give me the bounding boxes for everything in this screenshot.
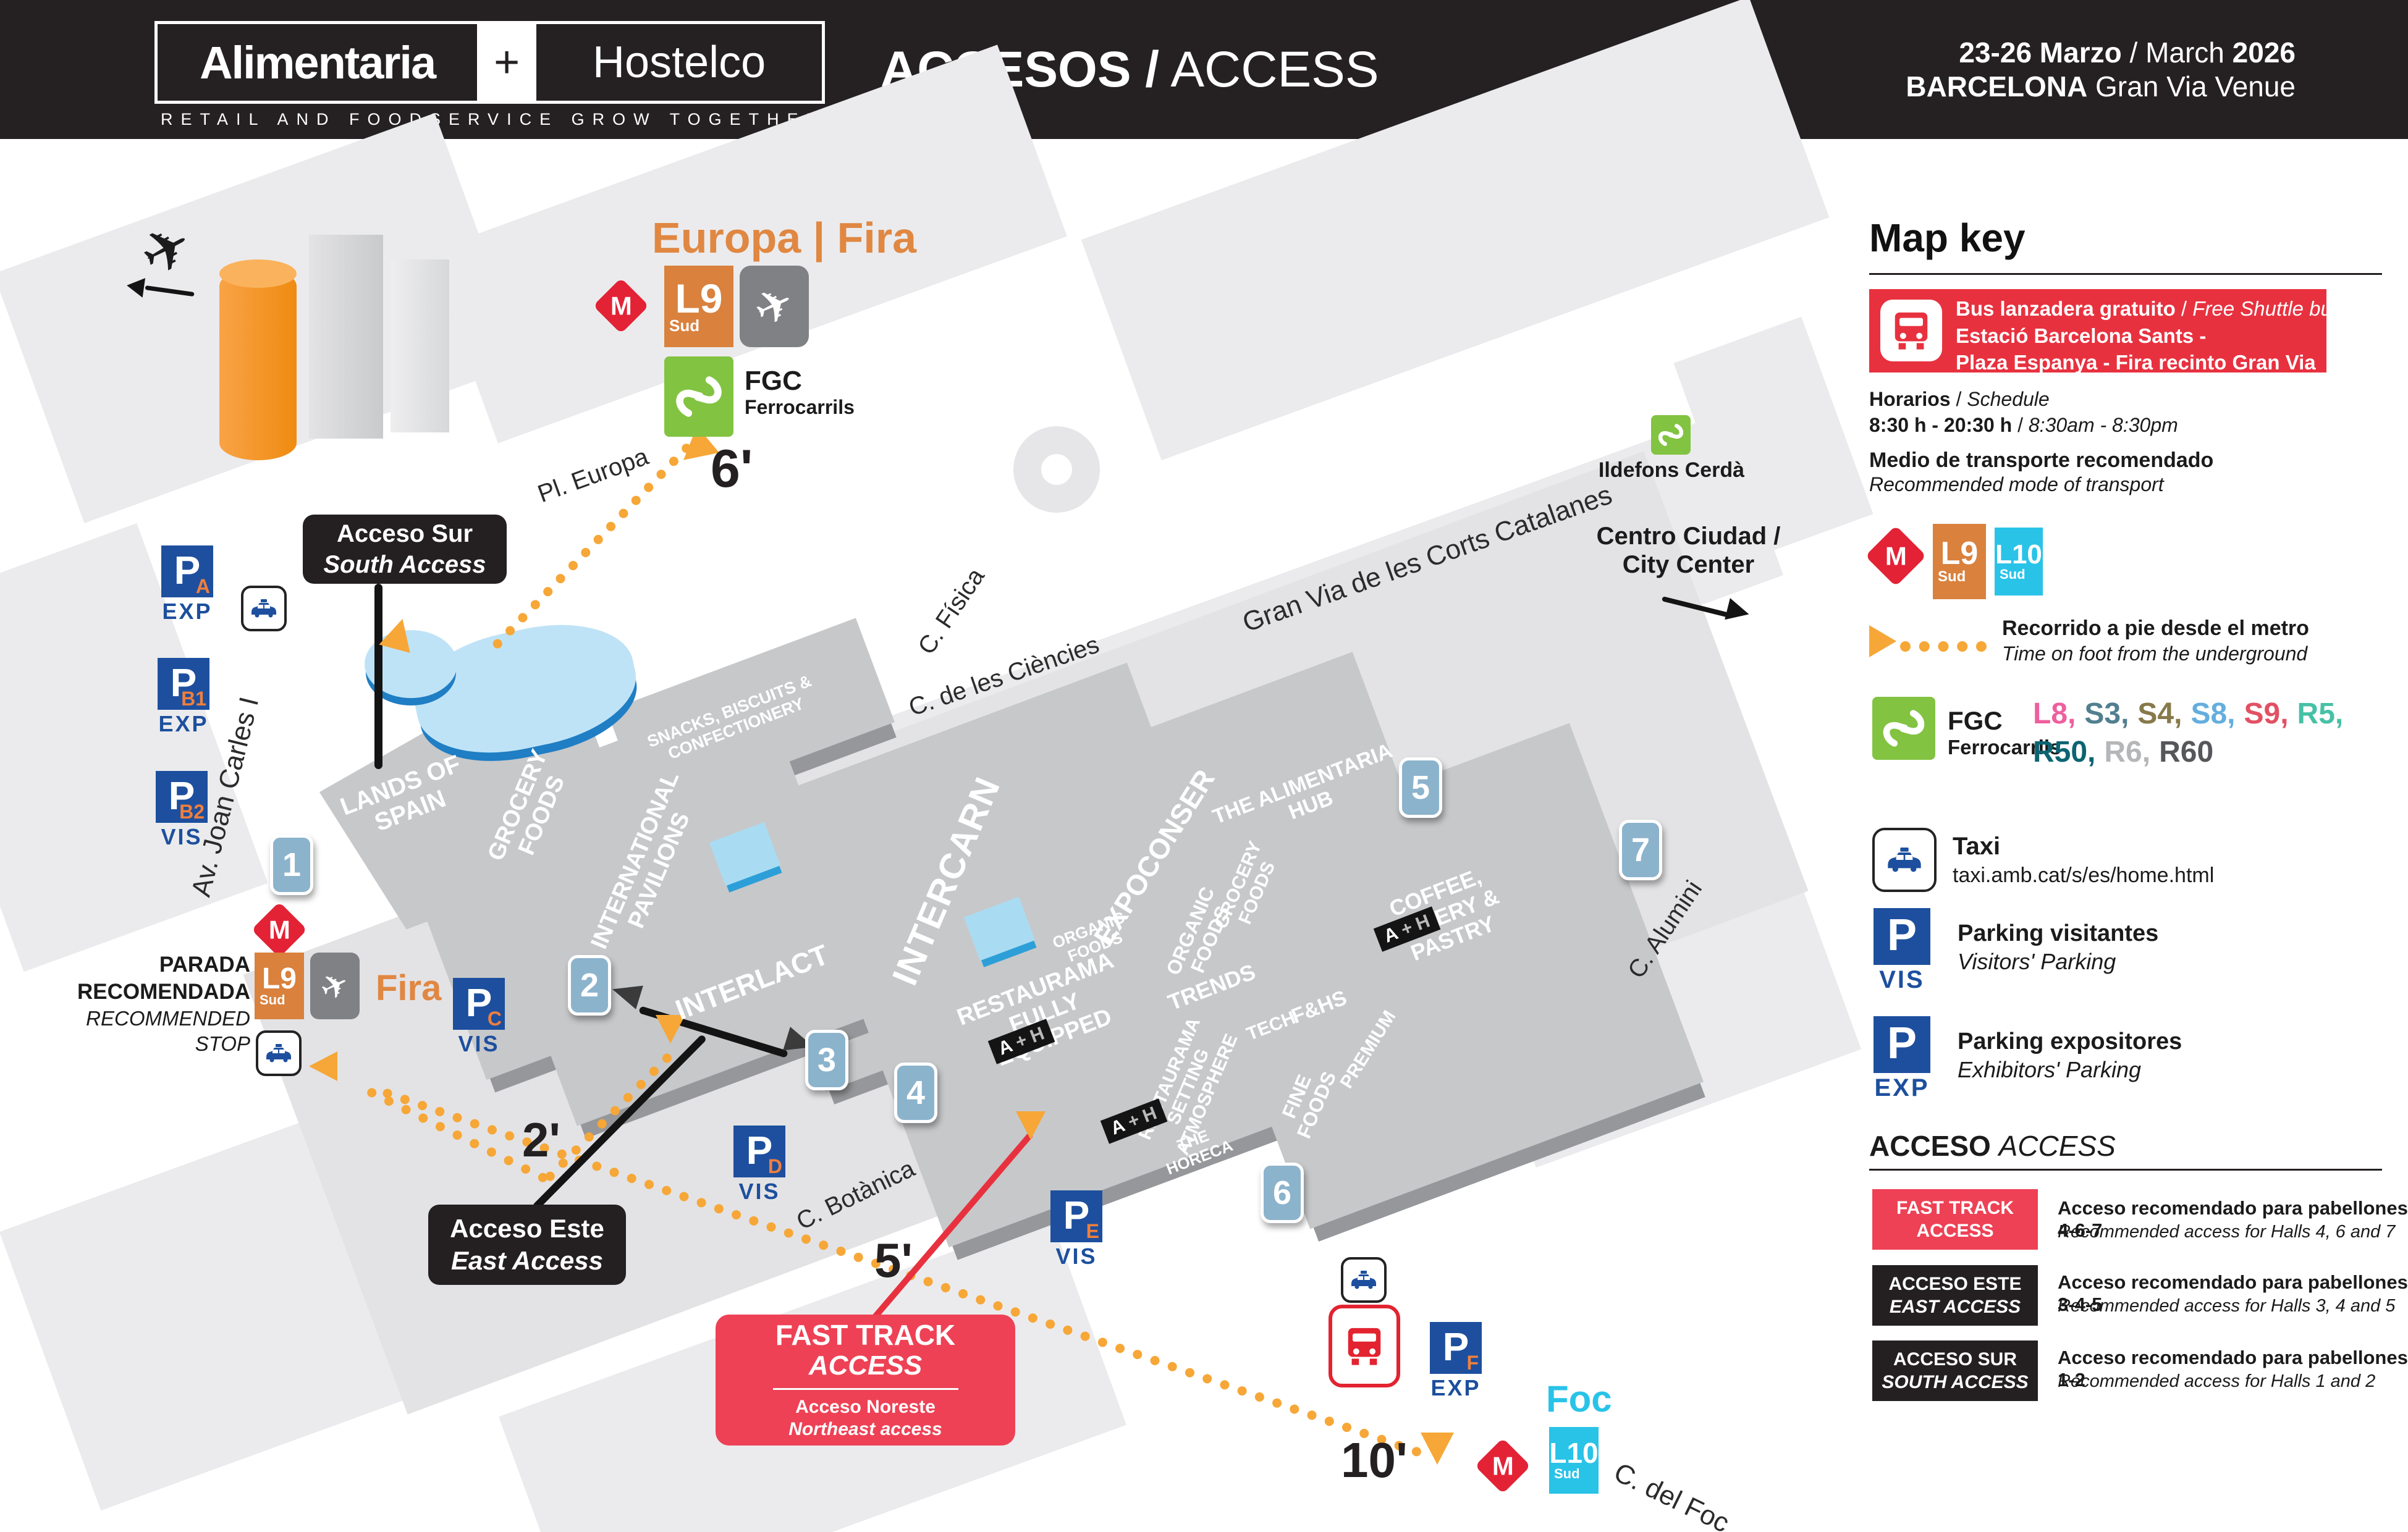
taxi-icon [256,1030,302,1076]
hall-number-3: 3 [805,1030,848,1090]
parking-d: PD VIS [732,1126,787,1205]
parking-vis-es: Parking visitantes [1958,920,2158,947]
south-access-pointer-line [374,584,382,769]
city-center-line2: City Center [1582,550,1795,579]
walk-legend-en: Time on foot from the underground [2002,642,2307,665]
acceso-divider [1869,1169,2382,1171]
fgc-icon-europa [664,356,733,437]
taxi-icon [241,586,287,631]
recommended-stop-label: PARADA RECOMENDADA RECOMMENDED STOP [46,951,250,1056]
airport-line-icon-fira: ✈ [310,953,360,1019]
south-access-legend-box: ACCESO SUR SOUTH ACCESS [1872,1340,2038,1401]
l9-badge-europa: L9 Sud [664,266,733,347]
venue-city: BARCELONA [1906,70,2087,103]
shuttle-legend: Bus lanzadera gratuito / Free Shuttle bu… [1869,289,2326,372]
east-access-callout: Acceso Este East Access [428,1205,626,1285]
fast-track-callout: FAST TRACK ACCESS Acceso Noreste Northea… [716,1315,1015,1446]
walk-time-10: 10' [1341,1432,1408,1489]
metro-icon-foc: M [1475,1438,1531,1494]
logo-tagline: RETAIL AND FOODSERVICE GROW TOGETHER [161,110,826,129]
logo-alimentaria: Alimentaria [158,24,477,101]
south-access-desc-en: Recommended access for Halls 1 and 2 [2058,1371,2375,1392]
walk-time-5: 5' [874,1232,913,1289]
walk-triangle-fira [309,1051,337,1081]
hotel-tower-top [219,259,297,288]
europa-fira-station-label: Europa | Fira [652,213,916,263]
taxi-legend-icon [1872,828,1937,892]
schedule-label: Horarios / Schedule [1869,388,2050,411]
ah-a: A [1381,923,1401,948]
parking-b2: PB2 VIS [154,771,209,850]
l9-badge-fira: L9 Sud [255,953,304,1019]
venue-name: Gran Via Venue [2095,70,2296,103]
street-label-fisica: C. Física [913,563,991,660]
event-venue-line: BARCELONA Gran Via Venue [1906,70,2296,104]
east-access-es: Acceso Este [428,1213,626,1245]
logo-plus-icon: + [477,24,536,101]
east-access-en: East Access [428,1245,626,1277]
south-access-en: South Access [303,549,507,580]
walk-legend-es: Recorrido a pie desde el metro [2002,617,2309,641]
fira-station-label: Fira [376,967,441,1009]
fast-track-legend-box: FAST TRACK ACCESS [1872,1189,2038,1250]
fast-track-desc-en: Recommended access for Halls 4, 6 and 7 [2058,1222,2395,1242]
logo: Alimentaria + Hostelco [154,21,825,104]
tower-building [391,259,449,432]
key-divider [1869,273,2382,275]
airport-arrow-head [125,276,145,298]
schedule-times: 8:30 h - 20:30 h / 8:30am - 8:30pm [1869,414,2178,437]
fast-track-divider [773,1388,958,1390]
parking-c: PC VIS [451,978,507,1057]
page-title-en: ACCESS [1170,41,1379,98]
l10-legend-badge: L10 Sud [1995,528,2043,596]
walk-triangle-foc [1421,1433,1454,1465]
city-center-arrow-head [1725,598,1752,625]
fgc-station-icon [1651,415,1691,455]
fgc-text-europa: FGC Ferrocarrils [745,368,855,417]
parking-e: PE VIS [1049,1190,1104,1269]
shuttle-legend-text: Bus lanzadera gratuito / Free Shuttle bu… [1956,295,2342,376]
ah-plus: + [1398,917,1416,941]
header: Alimentaria + Hostelco RETAIL AND FOODSE… [0,0,2408,139]
parking-b1: PB1 EXP [156,658,211,737]
ildefons-cerda-label: Ildefons Cerdà [1594,458,1749,482]
ah-h: H [1413,911,1433,935]
event-dates: 23-26 Marzo / March 2026 BARCELONA Gran … [1906,36,2296,104]
hall-number-7: 7 [1619,820,1662,880]
city-center-line1: Centro Ciudad / [1582,522,1795,550]
parking-exp-es: Parking expositores [1958,1029,2182,1055]
parking-exp-en: Exhibitors' Parking [1958,1057,2141,1083]
parking-exp-legend: P EXP [1872,1016,1932,1102]
walk-triangle-fast-track [1016,1111,1046,1140]
hall-number-4: 4 [894,1063,937,1123]
transport-mode-en: Recommended mode of transport [1869,473,2164,496]
parking-f: PF EXP [1428,1322,1484,1401]
hotel-tower-cylinder [219,269,297,460]
shuttle-bus-stop-icon [1329,1305,1400,1387]
parking-vis-legend: P VIS [1872,908,1932,994]
airport-line-icon-europa: ✈ [740,266,809,347]
hall-number-2: 2 [568,955,611,1016]
map-key-title: Map key [1869,215,2026,261]
tower-building [309,235,383,439]
metro-m: M [610,291,632,321]
l10-badge-foc: L10 Sud [1549,1427,1599,1494]
east-access-desc-en: Recommended access for Halls 3, 4 and 5 [2058,1296,2395,1316]
roundabout-center [1041,454,1072,485]
south-access-es: Acceso Sur [303,518,507,549]
foc-station-label: Foc [1546,1378,1612,1420]
taxi-icon [1341,1257,1387,1303]
fgc-lines-row1: L8,S3,S4,S8,S9,R5, [2033,697,2352,731]
hall-number-6: 6 [1261,1163,1304,1223]
walk-time-2: 2' [522,1112,560,1168]
date-es: 23-26 Marzo [1959,36,2121,69]
walk-legend-dots [1900,641,1987,652]
hall-number-5: 5 [1399,757,1442,818]
fgc-lines-row2: R50,R6,R60 [2033,735,2222,769]
parking-vis-en: Visitors' Parking [1958,949,2116,975]
date-year: 2026 [2233,36,2296,69]
metro-legend-icon: M [1865,526,1927,587]
shuttle-bus-icon [1880,300,1942,361]
logo-hostelco: Hostelco [536,24,822,101]
taxi-url-link[interactable]: taxi.amb.cat/s/es/home.html [1953,864,2214,888]
walk-time-6: 6' [711,439,753,500]
access-map-poster: Alimentaria + Hostelco RETAIL AND FOODSE… [0,0,2408,1532]
acceso-heading: ACCESO ACCESS [1869,1129,2116,1163]
walk-legend-triangle [1869,625,1896,657]
city-center-label: Centro Ciudad / City Center [1582,522,1795,579]
fgc-legend-icon [1872,697,1935,760]
metro-icon-fira: M [251,902,308,958]
taxi-legend-label: Taxi [1953,833,2000,861]
parking-a: PA EXP [159,545,215,625]
hall-number-1: 1 [270,835,313,895]
south-access-callout: Acceso Sur South Access [303,515,507,584]
transport-mode-es: Medio de transporte recomendado [1869,448,2213,473]
street-label-del-foc: C. del Foc [1609,1457,1734,1532]
date-en: March [2145,36,2224,69]
date-sep: / [2122,36,2145,69]
east-access-legend-box: ACCESO ESTE EAST ACCESS [1872,1265,2038,1326]
l9-legend-badge: L9 Sud [1933,524,1986,599]
event-date-line: 23-26 Marzo / March 2026 [1906,36,2296,70]
